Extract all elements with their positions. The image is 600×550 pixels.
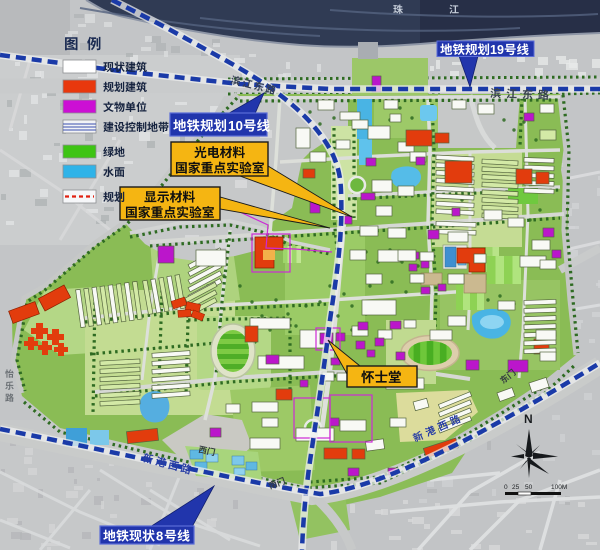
svg-text:8: 8 xyxy=(156,529,163,544)
svg-text:N: N xyxy=(524,412,533,426)
svg-text:0: 0 xyxy=(504,484,508,491)
svg-text:50: 50 xyxy=(525,484,533,491)
svg-text:10: 10 xyxy=(228,119,243,134)
svg-text:25: 25 xyxy=(512,484,520,491)
svg-text:19: 19 xyxy=(490,43,504,57)
svg-text:100M: 100M xyxy=(551,484,567,491)
